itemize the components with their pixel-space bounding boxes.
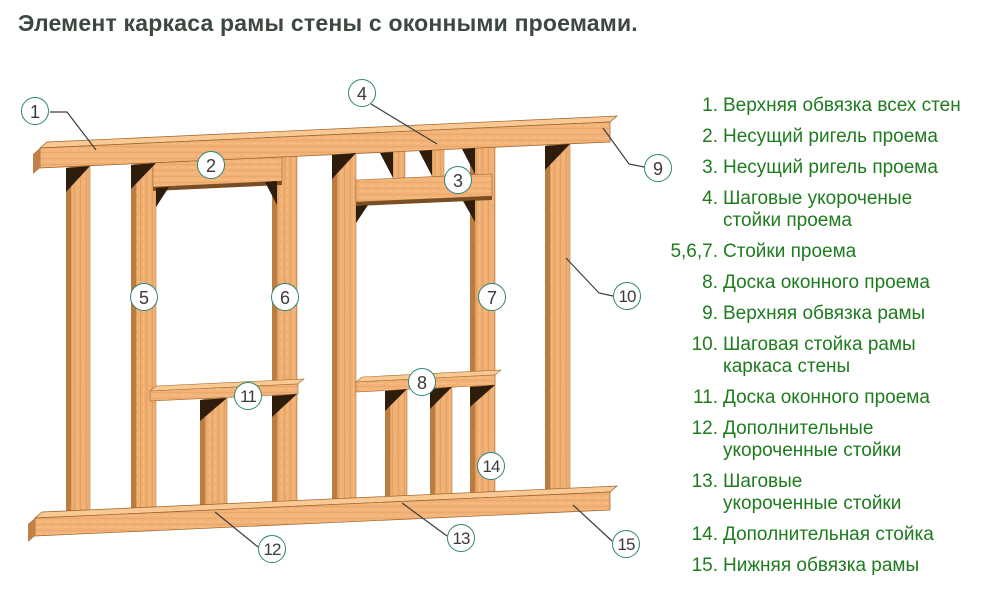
legend-item-number: 2. [660,126,723,148]
legend-item-14-: 14.Дополнительная стойка [660,524,995,546]
callout-11: 11 [234,382,262,410]
legend-item-label: Дополнительныеукороченные стойки [723,418,995,462]
legend-item-10-: 10.Шаговая стойка рамыкаркаса стены [660,334,995,378]
callout-15: 15 [612,530,640,558]
callout-13: 13 [447,524,475,552]
shadow-wedge [265,181,277,205]
cripple-below-sill1 [205,398,227,507]
legend-item-12-: 12.Дополнительныеукороченные стойки [660,418,995,462]
legend-item-number: 13. [660,471,723,515]
callout-6: 6 [271,283,299,311]
legend-item-label: Нижняя обвязка рамы [723,555,995,577]
stud-side-face [131,164,136,511]
legend-item-label: Верхняя обвязка рамы [723,303,995,325]
callout-10: 10 [613,282,641,310]
legend-item-label: Стойки проема [723,241,995,263]
legend-item-15-: 15.Нижняя обвязка рамы [660,555,995,577]
page: Элемент каркаса рамы стены с оконными пр… [0,0,1000,600]
stud-left-outer [71,166,90,513]
callout-7: 7 [478,283,506,311]
shadow-wedge [419,150,432,176]
stud-window1-right [277,156,297,504]
legend-item-label: Шаговая стойка рамыкаркаса стены [723,334,995,378]
legend-item-label: Шаговыеукороченные стойки [723,471,995,515]
legend-item-3-: 3.Несущий ригель проема [660,157,995,179]
shadow-wedge [356,205,368,223]
legend-item-number: 11. [660,387,723,409]
legend-item-number: 1. [660,95,723,117]
legend-item-8-: 8.Доска оконного проема [660,272,995,294]
callout-5: 5 [130,283,158,311]
legend-item-label: Несущий ригель проема [723,157,995,179]
legend-item-11-: 11.Доска оконного проема [660,387,995,409]
callout-2: 2 [197,151,225,179]
top-plate-end-cap [33,148,40,174]
legend-item-4-: 4.Шаговые укороченыестойки проема [660,188,995,232]
legend-item-13-: 13.Шаговыеукороченные стойки [660,471,995,515]
legend-item-label: Дополнительная стойка [723,524,995,546]
legend-item-number: 5,6,7. [660,241,723,263]
callout-4: 4 [348,79,376,107]
top-plate [40,122,610,168]
cripple-below-sill2-2 [435,387,452,497]
legend-list: 1.Верхняя обвязка всех стен2.Несущий риг… [660,95,995,586]
cripple-above-header2-1 [393,151,405,179]
callout-14: 14 [477,452,505,480]
legend-item-number: 15. [660,555,723,577]
legend-item-label: Несущий ригель проема [723,126,995,148]
legend-item-number: 9. [660,303,723,325]
stud-window1-left [136,163,156,510]
legend-item-5-6-7-: 5,6,7.Стойки проема [660,241,995,263]
legend-item-number: 4. [660,188,723,232]
legend-item-number: 3. [660,157,723,179]
legend-item-label: Верхняя обвязка всех стен [723,95,995,117]
bottom-plate [35,492,610,536]
stud-right-outer [550,144,570,491]
cripple-above-header2-2 [432,149,444,177]
callout-8: 8 [408,368,436,396]
callout-3: 3 [444,166,472,194]
legend-item-number: 10. [660,334,723,378]
legend-item-label: Доска оконного проема [723,272,995,294]
legend-item-number: 12. [660,418,723,462]
stud-side-face [332,154,337,502]
legend-item-9-: 9.Верхняя обвязка рамы [660,303,995,325]
leader-line-10 [566,258,613,296]
legend-item-2-: 2.Несущий ригель проема [660,126,995,148]
legend-item-1-: 1.Верхняя обвязка всех стен [660,95,995,117]
stud-window2-left [337,153,356,501]
legend-item-label: Шаговые укороченыестойки проема [723,188,995,232]
callout-1: 1 [21,97,49,125]
shadow-wedge [380,152,393,178]
cripple-below-sill2-1 [390,389,407,499]
legend-item-number: 8. [660,272,723,294]
stud-side-face [545,145,550,492]
callout-12: 12 [258,535,286,563]
legend-item-number: 14. [660,524,723,546]
stud-side-face [66,167,71,514]
bottom-plate-end-cap [28,518,35,542]
stud-side-face [272,157,277,505]
shadow-wedge [463,200,475,222]
legend-item-label: Доска оконного проема [723,387,995,409]
